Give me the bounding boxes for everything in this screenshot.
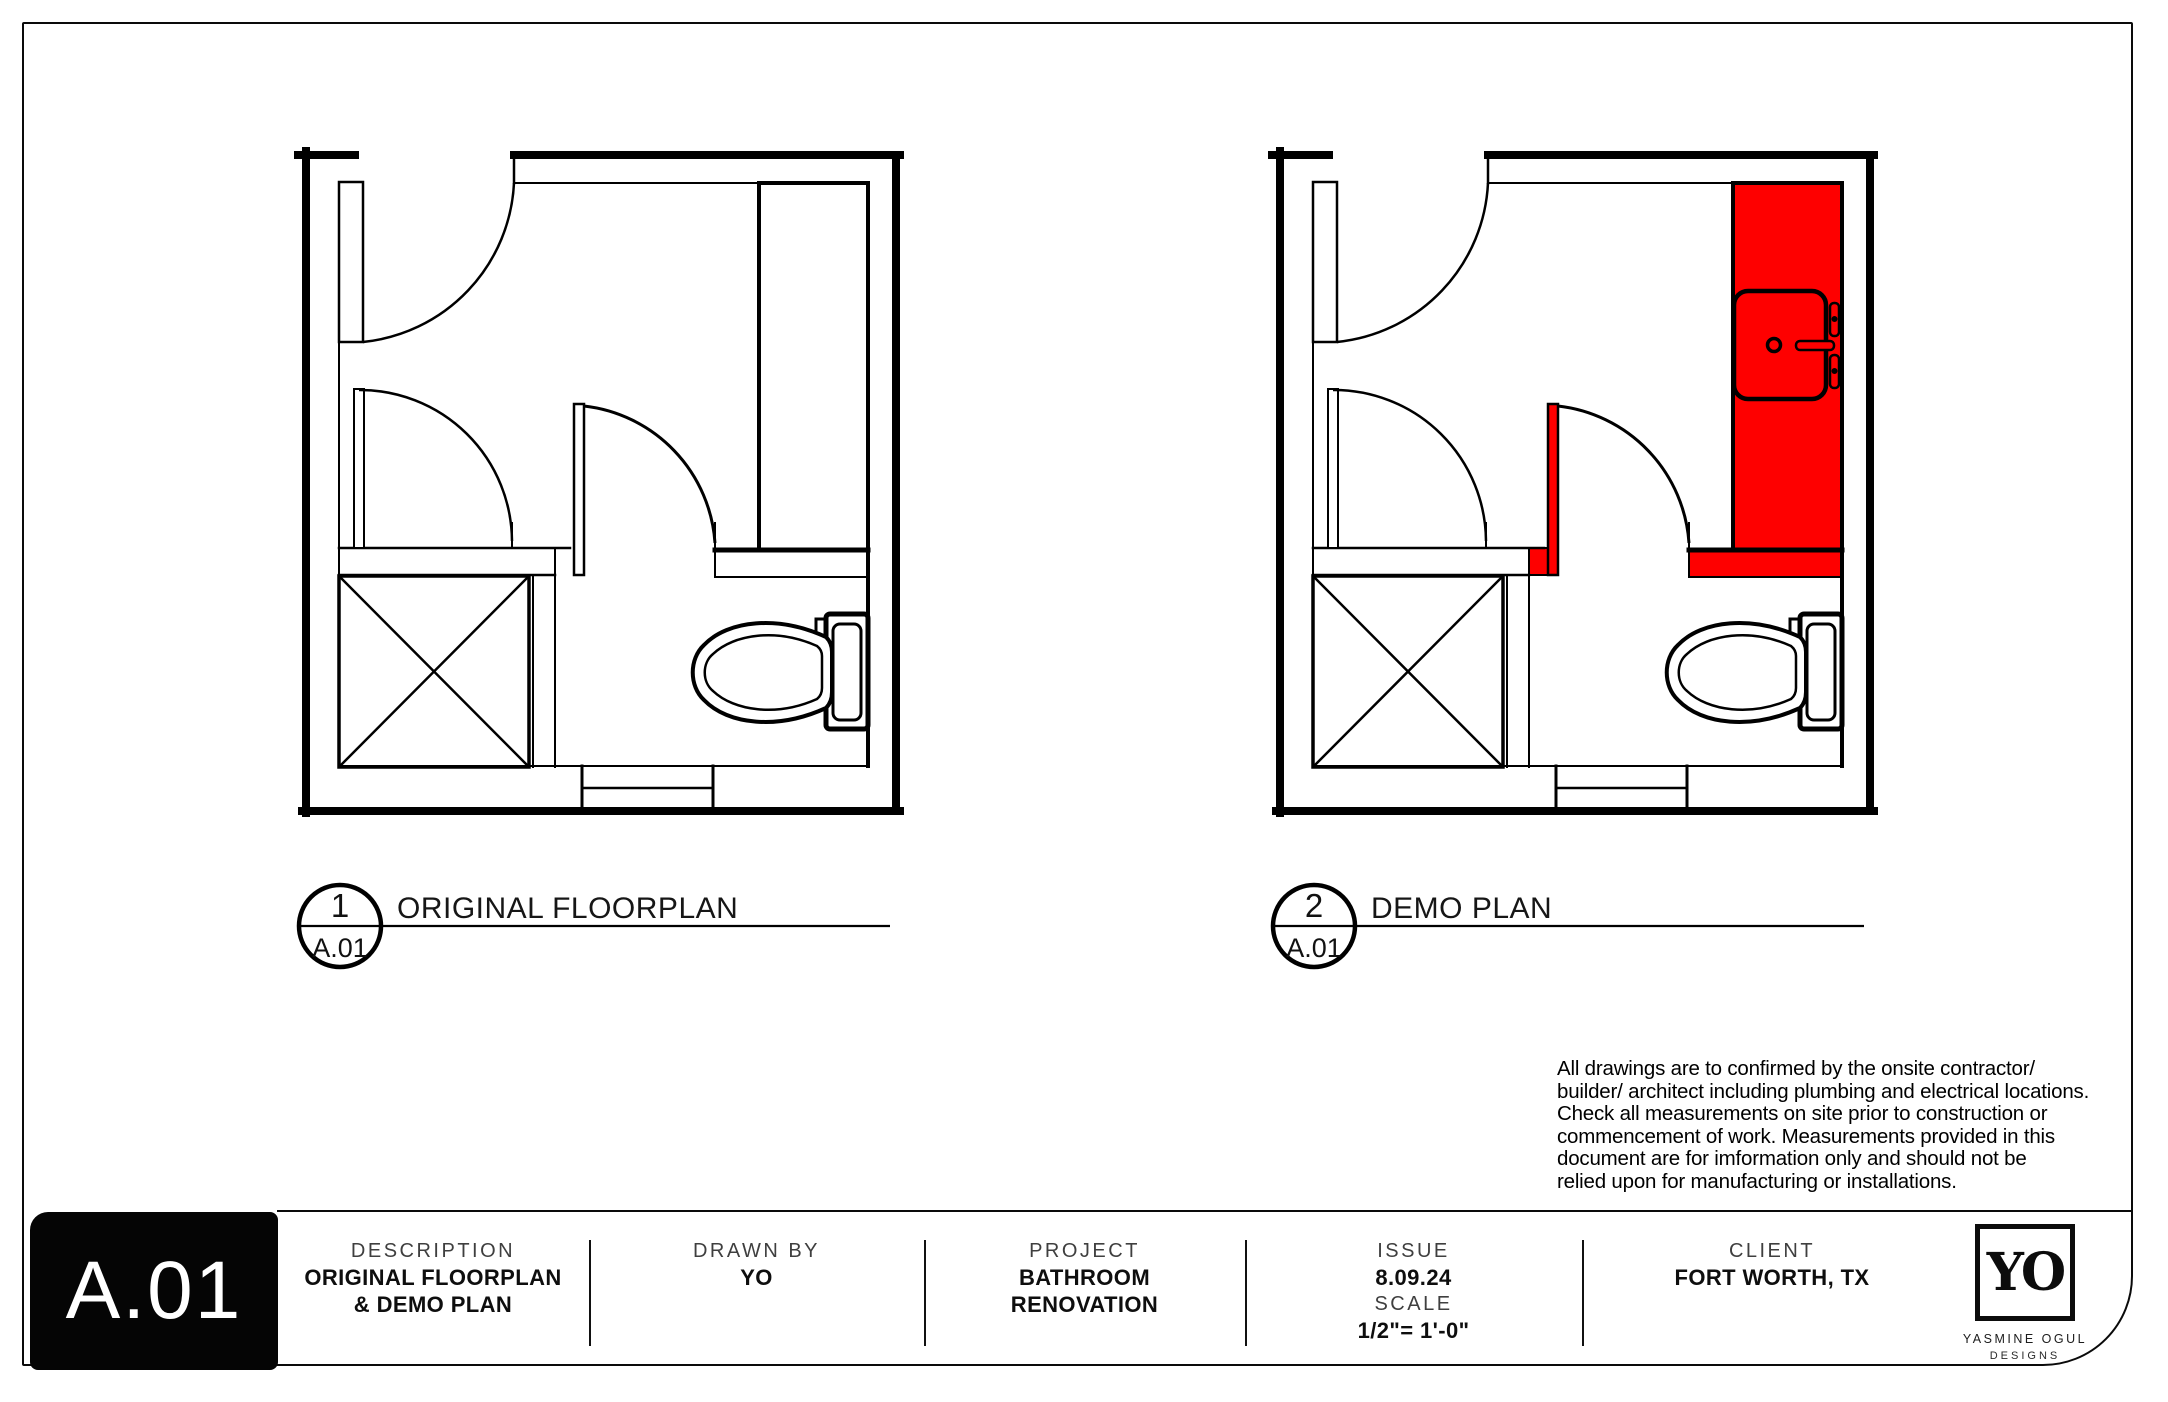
titleblock-col-issue-scale: ISSUE 8.09.24 SCALE 1/2"= 1'-0"	[1255, 1238, 1572, 1358]
demo-wall-chunk	[1529, 548, 1548, 575]
sheet-number: A.01	[66, 1244, 243, 1338]
project-value: BATHROOM	[1019, 1264, 1150, 1291]
door-swing-arc	[584, 406, 715, 543]
sink-drain	[1768, 339, 1781, 352]
titleblock-separator	[589, 1240, 591, 1346]
demo-plan-drawing: 2 A.01 DEMO PLAN	[1266, 141, 1886, 991]
titleblock-separator	[1245, 1240, 1247, 1346]
client-value: FORT WORTH, TX	[1674, 1264, 1869, 1291]
issue-label: ISSUE	[1377, 1238, 1450, 1264]
titleblock-col-drawnby: DRAWN BY YO	[599, 1238, 914, 1358]
door-swing-arc	[1337, 183, 1488, 342]
door-swing-arc	[1558, 406, 1689, 543]
sheet-number-tile: A.01	[30, 1212, 278, 1370]
original-floorplan-drawing: 1 A.01 ORIGINAL FLOORPLAN	[292, 141, 912, 991]
titleblock-col-description: DESCRIPTION ORIGINAL FLOORPLAN & DEMO PL…	[287, 1238, 579, 1358]
door-1-entry	[339, 182, 514, 342]
logo-monogram: YO	[1987, 1242, 2063, 1303]
description-value: & DEMO PLAN	[354, 1291, 512, 1318]
vanity-closet	[759, 183, 868, 550]
shower-symbol	[339, 576, 529, 767]
drawnby-value: YO	[740, 1264, 773, 1291]
door-3	[1548, 404, 1689, 575]
callout-sheet-ref: A.01	[312, 933, 368, 963]
sink-symbol	[1734, 291, 1839, 399]
disclaimer-line: builder/ architect including plumbing an…	[1557, 1081, 2133, 1104]
issue-date: 8.09.24	[1375, 1264, 1451, 1291]
description-label: DESCRIPTION	[351, 1238, 515, 1264]
titleblock-separator	[924, 1240, 926, 1346]
disclaimer-line: Check all measurements on site prior to …	[1557, 1103, 2133, 1126]
door-3	[574, 404, 715, 575]
description-value: ORIGINAL FLOORPLAN	[304, 1264, 561, 1291]
drawing-callout: 1 A.01 ORIGINAL FLOORPLAN	[298, 885, 890, 967]
door-2	[1328, 389, 1486, 548]
callout-number: 1	[331, 887, 349, 924]
wall-stub	[574, 404, 584, 575]
client-label: CLIENT	[1729, 1238, 1815, 1264]
door-2	[354, 389, 512, 548]
titleblock-col-client: CLIENT FORT WORTH, TX	[1592, 1238, 1952, 1358]
callout-number: 2	[1305, 887, 1323, 924]
drawnby-label: DRAWN BY	[693, 1238, 820, 1264]
logo-subtitle: DESIGNS	[1942, 1350, 2108, 1362]
door-1-entry	[1313, 182, 1488, 342]
disclaimer-note: All drawings are to confirmed by the ons…	[1557, 1058, 2133, 1194]
titleblock-top-line	[277, 1210, 2133, 1212]
door-swing-arc	[1333, 390, 1486, 541]
drawing-title: DEMO PLAN	[1371, 892, 1552, 925]
scale-label: SCALE	[1374, 1291, 1452, 1317]
disclaimer-line: All drawings are to confirmed by the ons…	[1557, 1058, 2133, 1081]
scale-value: 1/2"= 1'-0"	[1358, 1317, 1470, 1344]
disclaimer-line: relied upon for manufacturing or install…	[1557, 1171, 2133, 1194]
project-value: RENOVATION	[1011, 1291, 1158, 1318]
project-label: PROJECT	[1029, 1238, 1140, 1264]
shower-symbol	[1313, 576, 1503, 767]
disclaimer-line: document are for imformation only and sh…	[1557, 1148, 2133, 1171]
toilet-symbol	[1667, 614, 1842, 729]
demo-wall-strip	[1689, 550, 1842, 577]
faucet-spout	[1796, 341, 1834, 350]
titleblock-col-project: PROJECT BATHROOM RENOVATION	[934, 1238, 1235, 1358]
demo-wall-stub	[1548, 404, 1558, 575]
designer-logo: YO	[1975, 1224, 2075, 1321]
disclaimer-line: commencement of work. Measurements provi…	[1557, 1126, 2133, 1149]
logo-name: YASMINE OGUL	[1942, 1332, 2108, 1346]
drawing-callout: 2 A.01 DEMO PLAN	[1272, 885, 1864, 967]
drawing-title: ORIGINAL FLOORPLAN	[397, 892, 738, 925]
titleblock-separator	[1582, 1240, 1584, 1346]
callout-sheet-ref: A.01	[1286, 933, 1342, 963]
door-swing-arc	[359, 390, 512, 541]
door-swing-arc	[363, 183, 514, 342]
toilet-symbol	[693, 614, 868, 729]
